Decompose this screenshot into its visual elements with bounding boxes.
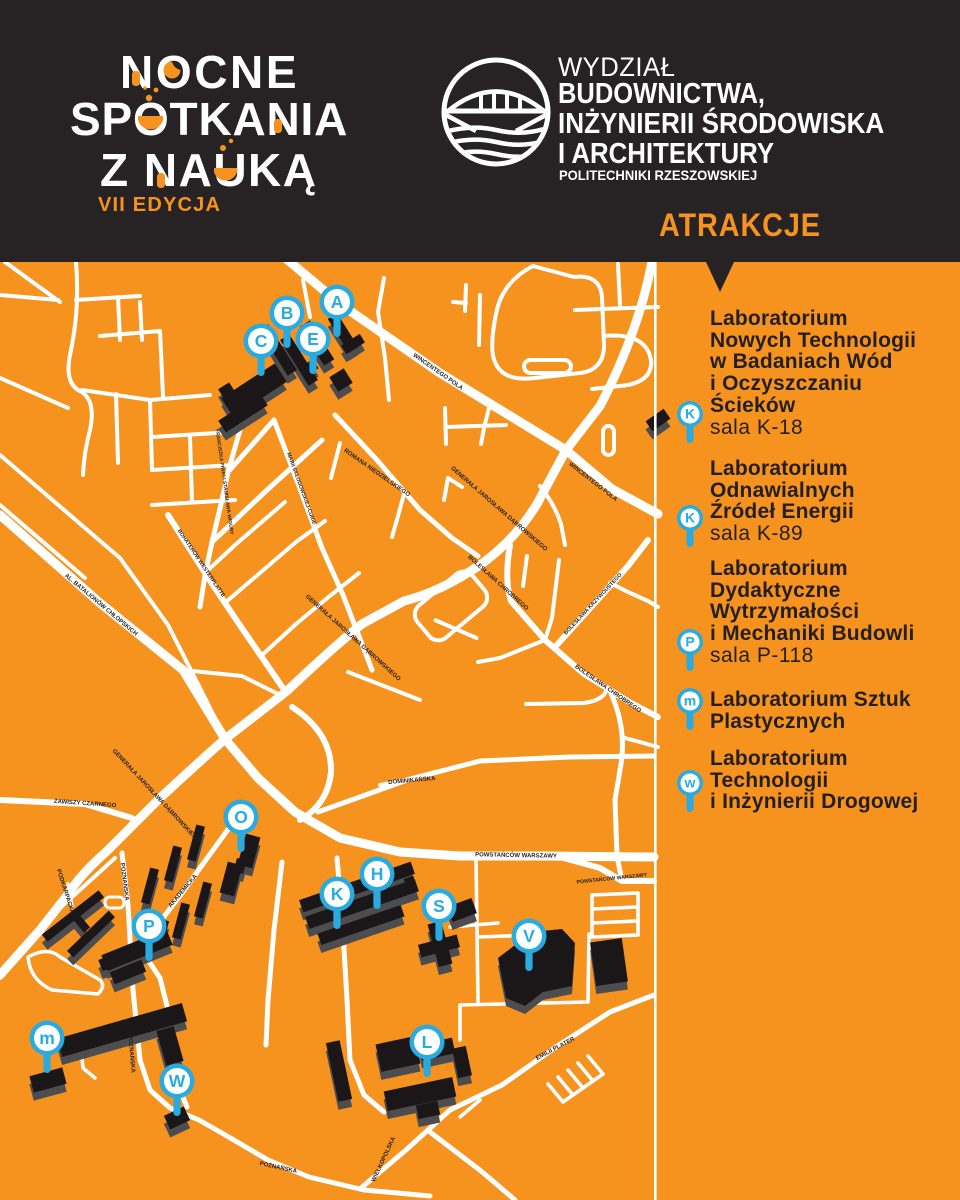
svg-text:P: P (685, 634, 694, 650)
svg-text:S: S (433, 896, 445, 916)
svg-text:K: K (685, 510, 695, 526)
svg-text:E: E (307, 329, 319, 349)
svg-text:K: K (685, 406, 695, 422)
svg-text:H: H (371, 864, 384, 884)
svg-text:K: K (331, 884, 344, 904)
svg-text:m: m (684, 693, 696, 709)
svg-text:m: m (39, 1028, 55, 1048)
svg-text:B: B (281, 303, 294, 323)
svg-text:L: L (422, 1032, 433, 1052)
svg-text:C: C (255, 331, 268, 351)
svg-text:w: w (684, 775, 696, 791)
svg-text:O: O (234, 807, 248, 827)
svg-text:V: V (523, 926, 535, 946)
svg-text:A: A (331, 292, 344, 312)
svg-text:W: W (169, 1071, 186, 1091)
svg-text:P: P (143, 916, 155, 936)
